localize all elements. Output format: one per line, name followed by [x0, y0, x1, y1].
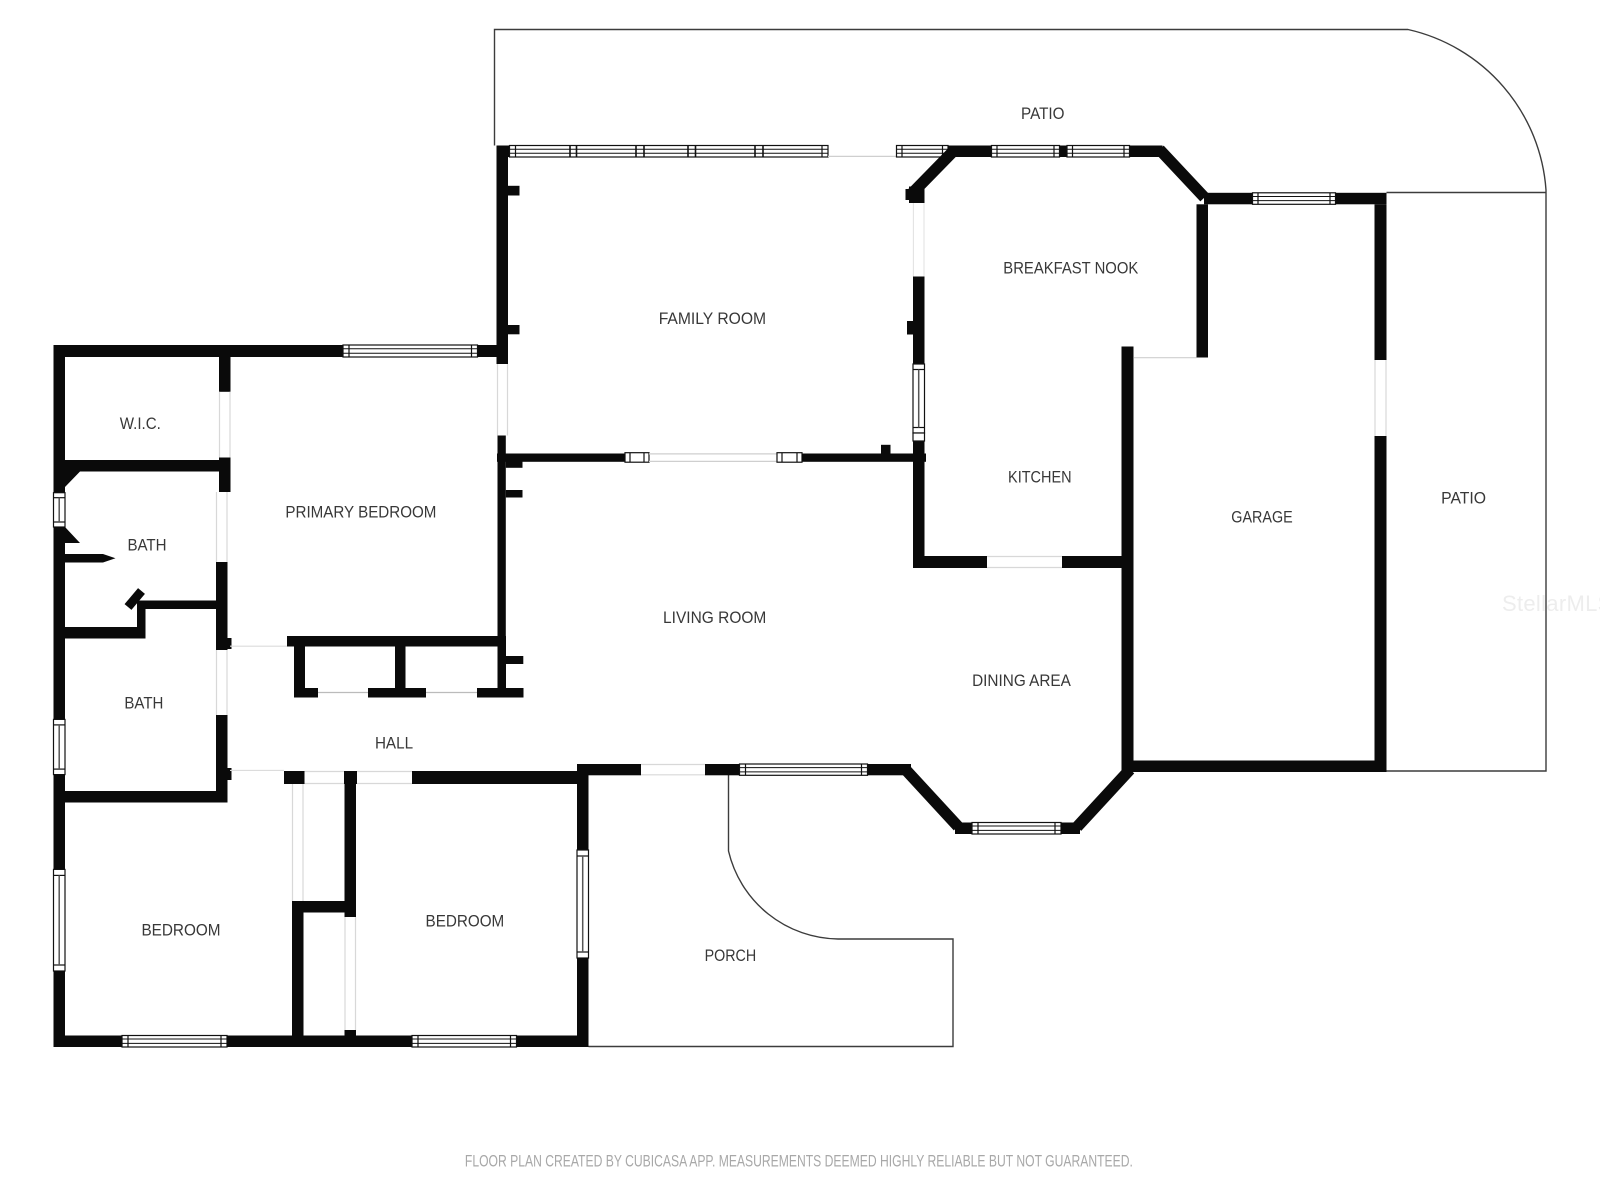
svg-text:PORCH: PORCH: [705, 946, 757, 965]
svg-text:DINING AREA: DINING AREA: [972, 671, 1071, 690]
svg-text:HALL: HALL: [375, 734, 413, 753]
svg-text:BEDROOM: BEDROOM: [426, 912, 505, 931]
svg-text:BREAKFAST NOOK: BREAKFAST NOOK: [1003, 259, 1139, 278]
svg-text:StellarMLS: StellarMLS: [1502, 591, 1600, 616]
svg-text:PATIO: PATIO: [1021, 104, 1065, 123]
svg-text:FLOOR PLAN CREATED BY CUBICASA: FLOOR PLAN CREATED BY CUBICASA APP. MEAS…: [465, 1152, 1133, 1171]
svg-text:GARAGE: GARAGE: [1231, 508, 1292, 527]
svg-text:PRIMARY BEDROOM: PRIMARY BEDROOM: [285, 502, 436, 521]
svg-text:KITCHEN: KITCHEN: [1008, 468, 1072, 487]
svg-text:PATIO: PATIO: [1441, 488, 1486, 507]
svg-text:BATH: BATH: [127, 536, 166, 555]
svg-text:BATH: BATH: [124, 693, 163, 712]
svg-text:W.I.C.: W.I.C.: [120, 414, 161, 433]
svg-text:BEDROOM: BEDROOM: [141, 920, 220, 939]
svg-text:LIVING ROOM: LIVING ROOM: [663, 608, 766, 627]
svg-text:FAMILY ROOM: FAMILY ROOM: [659, 309, 766, 328]
